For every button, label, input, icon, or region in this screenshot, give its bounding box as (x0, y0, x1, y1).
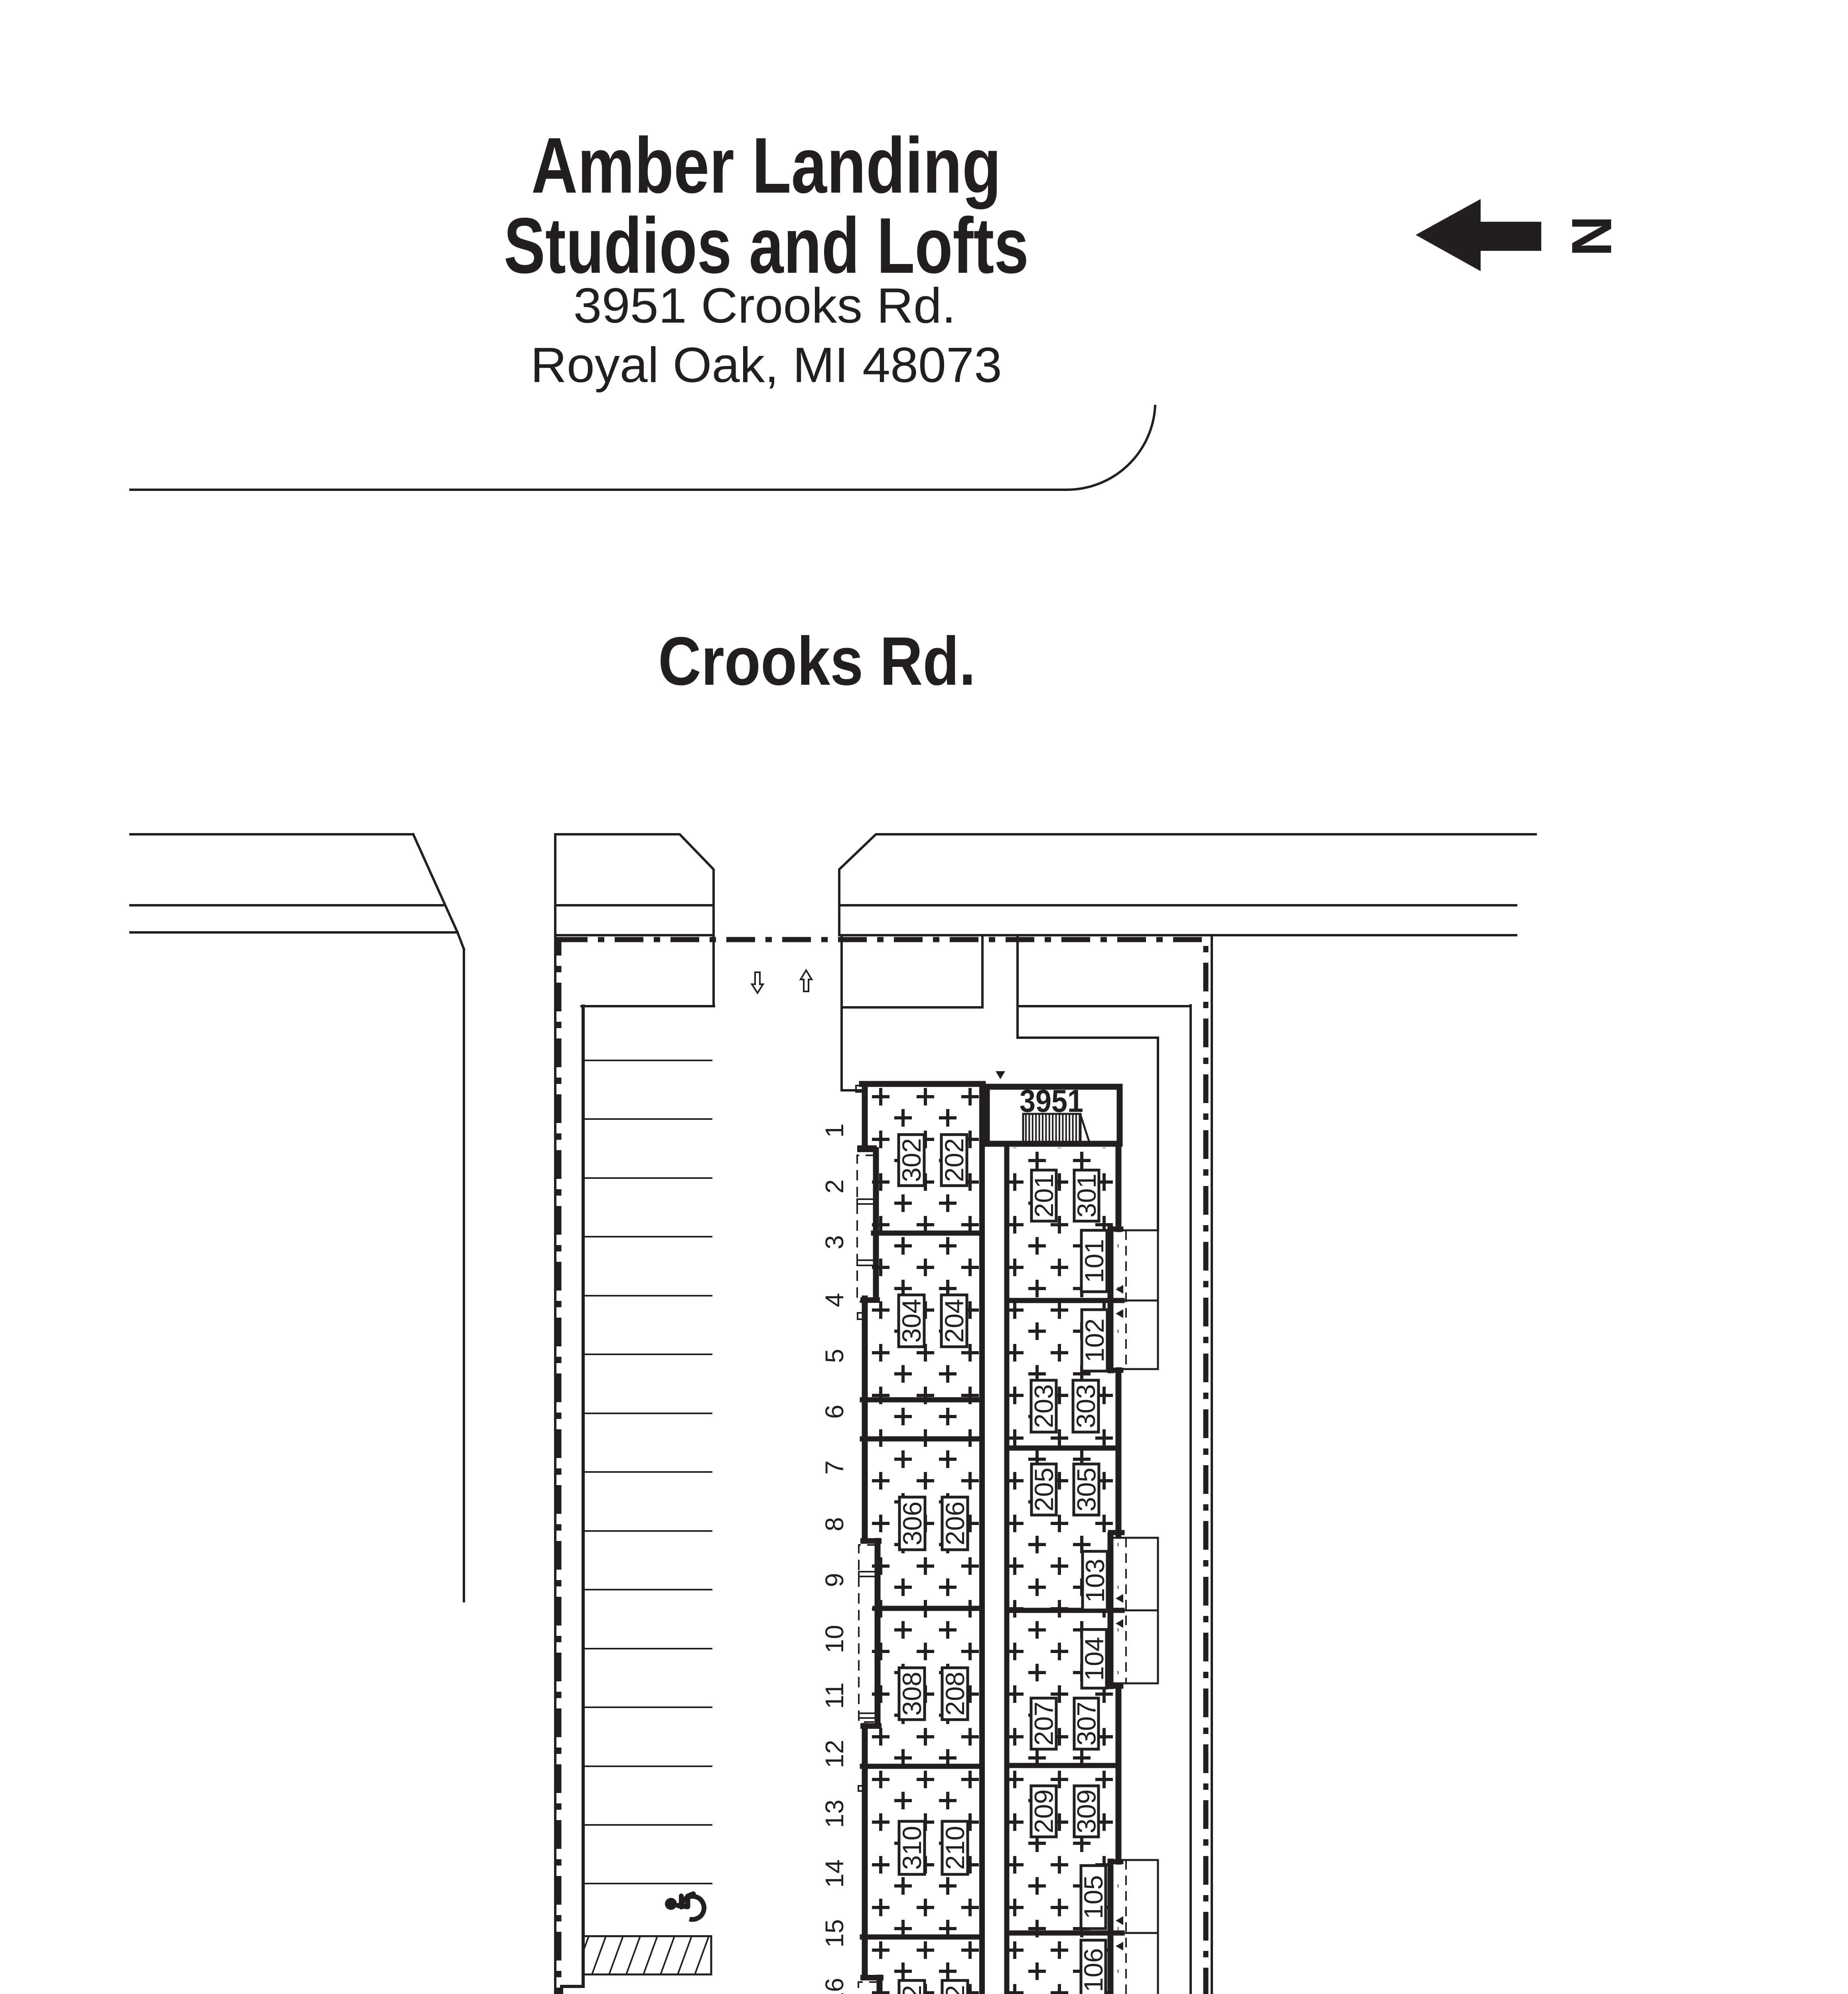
svg-text:Studios and Lofts: Studios and Lofts (504, 201, 1029, 290)
svg-text:207: 207 (1029, 1702, 1059, 1746)
svg-text:Crooks Rd.: Crooks Rd. (658, 623, 976, 699)
svg-text:13: 13 (820, 1799, 849, 1828)
svg-text:303: 303 (1071, 1384, 1101, 1428)
svg-text:8: 8 (820, 1517, 849, 1531)
svg-text:212: 212 (940, 1985, 970, 1994)
svg-text:307: 307 (1072, 1702, 1101, 1746)
svg-text:208: 208 (940, 1672, 970, 1716)
svg-text:2: 2 (820, 1179, 849, 1194)
svg-text:3951 Crooks Rd.: 3951 Crooks Rd. (574, 278, 956, 333)
svg-text:14: 14 (820, 1859, 849, 1888)
svg-text:4: 4 (820, 1293, 849, 1307)
svg-text:Royal Oak, MI 48073: Royal Oak, MI 48073 (531, 338, 1002, 393)
svg-text:304: 304 (897, 1299, 926, 1343)
svg-text:103: 103 (1080, 1559, 1110, 1602)
svg-text:209: 209 (1029, 1789, 1059, 1833)
svg-text:105: 105 (1079, 1875, 1108, 1919)
svg-text:1: 1 (820, 1123, 849, 1138)
svg-text:206: 206 (940, 1501, 970, 1545)
svg-text:15: 15 (820, 1919, 849, 1947)
svg-text:101: 101 (1079, 1239, 1109, 1283)
svg-text:308: 308 (897, 1672, 927, 1716)
svg-text:9: 9 (820, 1573, 849, 1587)
svg-text:312: 312 (897, 1985, 927, 1994)
svg-text:205: 205 (1029, 1468, 1059, 1511)
svg-text:11: 11 (820, 1683, 849, 1709)
svg-text:10: 10 (820, 1625, 849, 1653)
svg-text:204: 204 (939, 1299, 969, 1343)
svg-text:7: 7 (820, 1460, 849, 1475)
svg-text:201: 201 (1029, 1174, 1059, 1218)
svg-text:106: 106 (1079, 1948, 1108, 1992)
svg-text:302: 302 (897, 1138, 926, 1182)
svg-text:306: 306 (897, 1501, 927, 1545)
svg-text:Amber Landing: Amber Landing (531, 121, 1001, 209)
svg-text:5: 5 (820, 1349, 849, 1363)
svg-text:104: 104 (1079, 1637, 1109, 1681)
svg-text:203: 203 (1029, 1384, 1059, 1428)
svg-text:16: 16 (820, 1978, 849, 1994)
svg-text:202: 202 (939, 1138, 969, 1182)
svg-text:305: 305 (1072, 1468, 1101, 1511)
svg-text:309: 309 (1072, 1789, 1101, 1833)
svg-text:301: 301 (1072, 1174, 1101, 1218)
svg-text:N: N (1560, 216, 1623, 257)
svg-text:210: 210 (940, 1826, 970, 1870)
svg-text:310: 310 (897, 1826, 927, 1870)
svg-text:12: 12 (820, 1740, 849, 1768)
svg-text:102: 102 (1080, 1318, 1109, 1362)
svg-text:6: 6 (820, 1405, 849, 1419)
svg-text:3: 3 (820, 1235, 849, 1249)
